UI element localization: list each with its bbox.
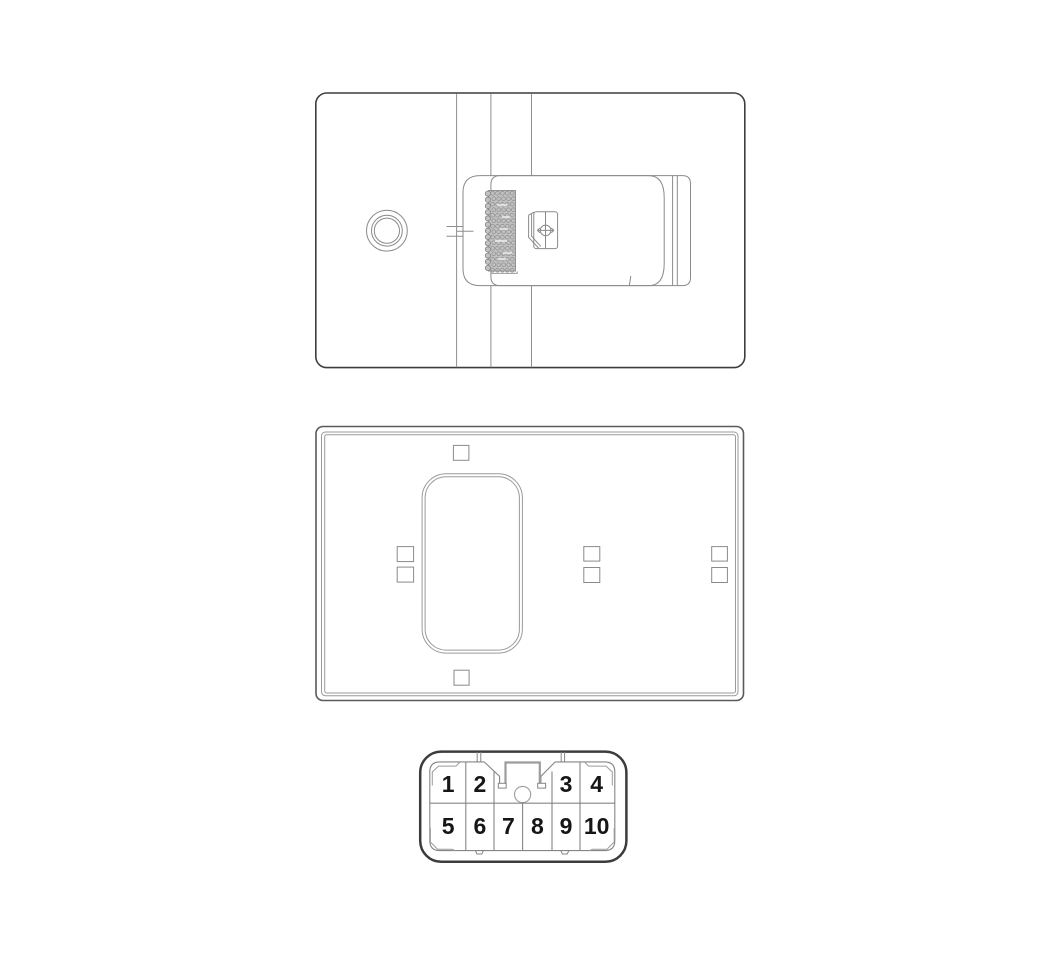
svg-text:4: 4 <box>590 771 603 797</box>
svg-text:3: 3 <box>560 771 573 797</box>
svg-text:5: 5 <box>442 813 455 839</box>
svg-text:6: 6 <box>474 813 487 839</box>
svg-text:8: 8 <box>531 813 544 839</box>
svg-text:2: 2 <box>474 771 487 797</box>
svg-text:1: 1 <box>442 771 455 797</box>
svg-text:9: 9 <box>560 813 573 839</box>
svg-text:7: 7 <box>502 813 515 839</box>
svg-text:10: 10 <box>584 813 610 839</box>
